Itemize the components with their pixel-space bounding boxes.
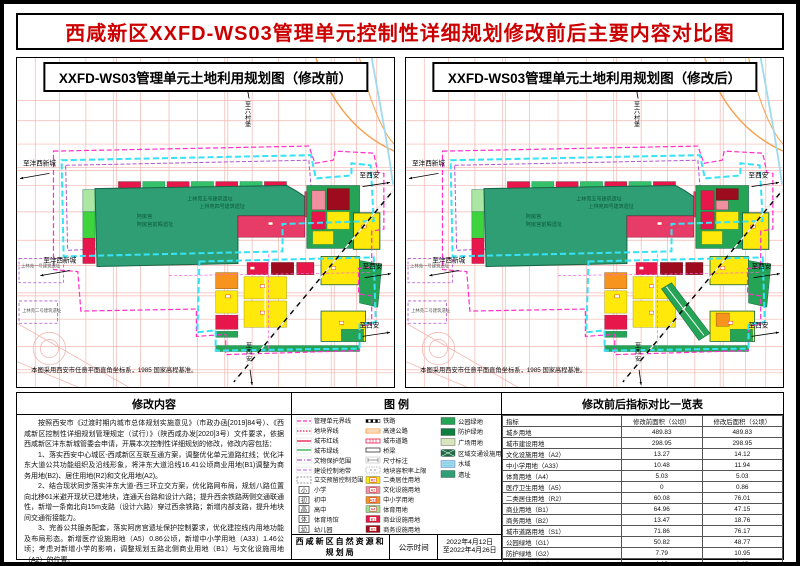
svg-text:至西安: 至西安 <box>360 320 380 329</box>
svg-text:西: 西 <box>246 349 252 356</box>
table-row: 城市道路用地（S1）71.8676.17 <box>503 526 783 537</box>
table-cell: 1.19 <box>622 559 703 566</box>
table-cell: 城市道路用地（S1） <box>503 526 622 537</box>
legend-item: A2文化设施用地 <box>365 485 439 495</box>
table-cell: 医疗卫生用地（A5） <box>503 482 622 493</box>
table-row: 文化设施用地（A2）13.2714.12 <box>503 449 783 460</box>
table-cell: 中小学用地（A33） <box>503 460 622 471</box>
table-cell: 1.19 <box>702 559 783 566</box>
svg-text:至西安: 至西安 <box>749 170 769 179</box>
legend-item: 广场用地 <box>440 437 499 448</box>
legend-item: 城市道路 <box>365 436 439 446</box>
legend-body: 管理单元界线地块界线城市红线城市绿线文物保护范围建设控制地带立交预留控制范围小小… <box>292 412 501 534</box>
table-cell: 298.95 <box>622 438 703 449</box>
table-cell: 76.17 <box>702 526 783 537</box>
legend-item: 防护绿地 <box>440 427 499 438</box>
svg-text:上林苑四号建筑遗址: 上林苑四号建筑遗址 <box>199 203 244 210</box>
map-panel-before: 上林苑五号建筑遗址上林苑四号建筑遗址阿房宫阿房宫前殿遗址上林苑一号建筑遗址上林苑… <box>16 57 395 388</box>
svg-text:至西安: 至西安 <box>360 170 380 179</box>
legend-item-label: 文物保护范围 <box>314 456 351 465</box>
svg-text:R2: R2 <box>371 478 376 482</box>
table-cell: 71.86 <box>622 526 703 537</box>
legend-item: 城市绿线 <box>296 445 364 455</box>
svg-text:上林苑五号建筑遗址: 上林苑五号建筑遗址 <box>187 196 232 203</box>
legend-item: 区域交通设施用地 <box>440 448 499 459</box>
table-cell: 13.27 <box>622 449 703 460</box>
table-row: 医疗卫生用地（A5）00.86 <box>503 482 783 493</box>
table-cell: 10.48 <box>622 460 703 471</box>
legend-item-label: 广场用地 <box>458 438 483 447</box>
legend-item-label: 高速公路 <box>383 426 408 435</box>
table-cell: 14.12 <box>702 449 783 460</box>
legend-item: 公园绿地 <box>440 416 499 427</box>
svg-text:阿房宫: 阿房宫 <box>526 212 542 220</box>
legend-item-label: 二类居住用地 <box>383 475 420 484</box>
publisher-bar: 西咸新区自然资源和规划局 公示时间 2022年4月12日 至2022年4月26日 <box>292 534 501 559</box>
legend-item-label: 尺寸标注 <box>383 456 408 465</box>
svg-text:本图采用西安市任意平面直角坐标系，1985 国家高程基准。: 本图采用西安市任意平面直角坐标系，1985 国家高程基准。 <box>31 365 197 374</box>
legend-item: 幼幼儿园 <box>296 524 364 534</box>
table-cell: 11.94 <box>702 460 783 471</box>
table-cell: 64.96 <box>622 504 703 515</box>
comparison-poster: 西咸新区XXFD-WS03管理单元控制性详细规划修改前后主要内容对比图 上林苑五… <box>0 0 800 566</box>
svg-text:西: 西 <box>635 349 641 356</box>
legend-item: 初初中 <box>296 495 364 505</box>
legend-item: 尺寸标注 <box>365 455 439 465</box>
svg-text:小: 小 <box>301 486 307 494</box>
svg-text:阿房宫前殿遗址: 阿房宫前殿遗址 <box>526 220 564 228</box>
table-cell: 76.01 <box>702 493 783 504</box>
modification-header: 修改内容 <box>17 393 291 415</box>
legend-item-label: 城市道路 <box>383 436 408 445</box>
indicator-table: 指标修改前面积（公顷）修改后面积（公顷）城乡用地489.83489.83城市建设… <box>502 415 783 566</box>
page-title: 西咸新区XXFD-WS03管理单元控制性详细规划修改前后主要内容对比图 <box>16 13 784 50</box>
table-row: 防护绿地（G2）7.7910.95 <box>503 548 783 559</box>
legend-item-label: 管理单元界线 <box>314 416 351 425</box>
svg-text:至: 至 <box>245 102 251 109</box>
legend-item: R2二类居住用地 <box>365 475 439 485</box>
legend-item-label: 中小学用地 <box>383 495 414 504</box>
legend-item-label: 地块容积率上限 <box>383 466 426 475</box>
svg-text:安: 安 <box>246 355 252 363</box>
svg-text:至沣西新城: 至沣西新城 <box>43 255 76 264</box>
legend-section: 图 例 管理单元界线地块界线城市红线城市绿线文物保护范围建设控制地带立交预留控制… <box>292 392 502 560</box>
legend-item-label: 区域交通设施用地 <box>458 449 501 458</box>
legend-item-label: 幼儿园 <box>314 525 333 534</box>
legend-item-label: 桥梁 <box>383 446 395 455</box>
table-row: 城市建设用地298.95298.95 <box>503 438 783 449</box>
table-cell: 48.77 <box>702 537 783 548</box>
svg-text:至: 至 <box>635 343 641 350</box>
table-cell: 13.47 <box>622 515 703 526</box>
legend-item-label: 公园绿地 <box>458 417 483 426</box>
legend-item-label: 初中 <box>314 495 326 504</box>
legend-column-1: 管理单元界线地块界线城市红线城市绿线文物保护范围建设控制地带立交预留控制范围小小… <box>296 416 364 534</box>
svg-text:B1: B1 <box>371 518 376 522</box>
table-row: 广场用地（G3）1.191.19 <box>503 559 783 566</box>
svg-text:高: 高 <box>301 506 307 514</box>
table-cell: 广场用地（G3） <box>503 559 622 566</box>
legend-column-2: 铁路高速公路城市道路桥梁尺寸标注地块容积率上限R2二类居住用地A2文化设施用地A… <box>365 416 439 534</box>
legend-item: 小小学 <box>296 485 364 495</box>
table-cell: 城乡用地 <box>503 427 622 438</box>
svg-text:幼: 幼 <box>301 525 307 533</box>
table-cell: 298.95 <box>702 438 783 449</box>
svg-text:至: 至 <box>246 343 252 350</box>
legend-item: 立交预留控制范围 <box>296 475 364 485</box>
table-cell: 防护绿地（G2） <box>503 548 622 559</box>
svg-text:至沣西新城: 至沣西新城 <box>23 158 56 167</box>
svg-text:堡: 堡 <box>245 121 251 129</box>
table-cell: 0 <box>622 482 703 493</box>
table-cell: 体育用地（A4） <box>503 471 622 482</box>
svg-text:本图采用西安市任意平面直角坐标系，1985 国家高程基准。: 本图采用西安市任意平面直角坐标系，1985 国家高程基准。 <box>420 365 586 374</box>
legend-item: B1商业设施用地 <box>365 514 439 524</box>
legend-item-label: 建设控制地带 <box>314 466 351 475</box>
legend-item-label: 商务设施用地 <box>383 525 420 534</box>
modification-paragraph-0: 按照西安市《过渡时期内城市总体规划实施意见》（市政办函[2019]84号）、《西… <box>24 419 284 451</box>
legend-item-label: 文化设施用地 <box>383 485 420 494</box>
map-after-title: XXFD-WS03管理单元土地利用规划图（修改后） <box>432 62 757 92</box>
legend-item: 铁路 <box>365 416 439 426</box>
table-cell: 二类居住用地（R2） <box>503 493 622 504</box>
svg-text:A2: A2 <box>371 488 376 492</box>
legend-item: 高速公路 <box>365 426 439 436</box>
legend-item: 遗址 <box>440 469 499 480</box>
svg-text:至沣西新城: 至沣西新城 <box>432 255 465 264</box>
table-cell: 7.79 <box>622 548 703 559</box>
svg-text:阿房宫前殿遗址: 阿房宫前殿遗址 <box>137 220 175 228</box>
svg-text:六: 六 <box>634 107 640 115</box>
legend-item: 高高中 <box>296 504 364 514</box>
publicity-dates: 2022年4月12日 至2022年4月26日 <box>437 535 501 559</box>
table-cell: 18.76 <box>702 515 783 526</box>
map-before-title: XXFD-WS03管理单元土地利用规划图（修改前） <box>43 62 368 92</box>
svg-text:上林苑二号建筑遗址: 上林苑二号建筑遗址 <box>411 307 451 314</box>
table-cell: 10.95 <box>702 548 783 559</box>
legend-item: 文物保护范围 <box>296 455 364 465</box>
svg-text:至西安: 至西安 <box>749 320 769 329</box>
legend-item-label: 体育场馆 <box>314 515 339 524</box>
legend-item: 城市红线 <box>296 436 364 446</box>
table-row: 城乡用地489.83489.83 <box>503 427 783 438</box>
table-cell: 489.83 <box>702 427 783 438</box>
legend-item-label: 城市红线 <box>314 436 339 445</box>
table-column-header: 修改前面积（公顷） <box>622 416 703 427</box>
legend-item: 管理单元界线 <box>296 416 364 426</box>
table-cell: 5.03 <box>702 471 783 482</box>
table-cell: 文化设施用地（A2） <box>503 449 622 460</box>
svg-text:堡: 堡 <box>634 121 640 129</box>
legend-item-label: 立交预留控制范围 <box>314 475 364 484</box>
table-cell: 0.86 <box>702 482 783 493</box>
svg-text:至西安: 至西安 <box>363 262 383 271</box>
modification-paragraph-3: 3、完善公共服务配套，落实阿房宫遗址保护控制要求，优化建控线内用地功能及布局形态… <box>24 524 284 566</box>
table-cell: 城市建设用地 <box>503 438 622 449</box>
svg-text:上林苑二号建筑遗址: 上林苑二号建筑遗址 <box>22 307 62 314</box>
legend-item: 地块容积率上限 <box>365 465 439 475</box>
indicator-table-section: 修改前后指标对比一览表 指标修改前面积（公顷）修改后面积（公顷）城乡用地489.… <box>502 392 784 560</box>
svg-text:安: 安 <box>635 355 641 363</box>
modification-section: 修改内容 按照西安市《过渡时期内城市总体规划实施意见》（市政办函[2019]84… <box>16 392 292 560</box>
svg-text:上林苑四号建筑遗址: 上林苑四号建筑遗址 <box>588 203 633 210</box>
table-cell: 5.03 <box>622 471 703 482</box>
legend-column-3: 公园绿地防护绿地广场用地区域交通设施用地水域遗址 <box>440 416 499 534</box>
table-header-row: 指标修改前面积（公顷）修改后面积（公顷） <box>503 416 783 427</box>
table-row: 二类居住用地（R2）60.0876.01 <box>503 493 783 504</box>
svg-text:B2: B2 <box>371 527 376 531</box>
svg-text:村: 村 <box>634 114 640 122</box>
legend-item: A33中小学用地 <box>365 495 439 505</box>
legend-item-label: 城市绿线 <box>314 446 339 455</box>
legend-item-label: 小学 <box>314 485 326 494</box>
bottom-section: 修改内容 按照西安市《过渡时期内城市总体规划实施意见》（市政办函[2019]84… <box>16 392 784 560</box>
modification-text: 按照西安市《过渡时期内城市总体规划实施意见》（市政办函[2019]84号）、《西… <box>17 415 291 566</box>
table-cell: 47.15 <box>702 504 783 515</box>
svg-text:至: 至 <box>634 102 640 109</box>
table-cell: 公园绿地（G1） <box>503 537 622 548</box>
legend-item-label: 防护绿地 <box>458 427 483 436</box>
svg-text:至沣西新城: 至沣西新城 <box>412 158 445 167</box>
indicator-table-header: 修改前后指标对比一览表 <box>502 393 783 415</box>
legend-item-label: 铁路 <box>383 416 395 425</box>
publicity-date-end: 至2022年4月26日 <box>443 547 497 555</box>
svg-text:上林苑五号建筑遗址: 上林苑五号建筑遗址 <box>576 196 621 203</box>
legend-item-label: 地块界线 <box>314 426 339 435</box>
modification-paragraph-1: 1、落实西安中心城区-西咸新区互联互通方案，调整优化单元道路红线；优化沣东大道公… <box>24 451 284 483</box>
table-cell: 60.08 <box>622 493 703 504</box>
modification-paragraph-2: 2、结合现状同步落实沣东大道-西三环立交方案，优化路网布局，规划八路位置向北移6… <box>24 482 284 524</box>
svg-text:至西安: 至西安 <box>752 262 772 271</box>
svg-text:六: 六 <box>245 107 251 115</box>
legend-item: 桥梁 <box>365 445 439 455</box>
publicity-time-label: 公示时间 <box>389 535 437 559</box>
legend-item: 建设控制地带 <box>296 465 364 475</box>
legend-item: 水域 <box>440 458 499 469</box>
map-before-canvas: 上林苑五号建筑遗址上林苑四号建筑遗址阿房宫阿房宫前殿遗址上林苑一号建筑遗址上林苑… <box>17 58 394 387</box>
table-cell: 商业用地（B1） <box>503 504 622 515</box>
publicity-date-start: 2022年4月12日 <box>446 539 493 547</box>
legend-item: A4体育用地 <box>365 504 439 514</box>
legend-item-label: 体育用地 <box>383 505 408 514</box>
table-column-header: 指标 <box>503 416 622 427</box>
svg-text:阿房宫: 阿房宫 <box>137 212 153 220</box>
legend-item-label: 水域 <box>458 459 470 468</box>
table-cell: 50.82 <box>622 537 703 548</box>
svg-text:村: 村 <box>245 114 251 122</box>
legend-item: B2商务设施用地 <box>365 524 439 534</box>
map-panel-after: 上林苑五号建筑遗址上林苑四号建筑遗址阿房宫阿房宫前殿遗址上林苑一号建筑遗址上林苑… <box>405 57 784 388</box>
agency-name: 西咸新区自然资源和规划局 <box>292 535 389 559</box>
table-row: 体育用地（A4）5.035.03 <box>503 471 783 482</box>
legend-item-label: 商业设施用地 <box>383 515 420 524</box>
legend-item-label: 遗址 <box>458 470 470 479</box>
table-row: 公园绿地（G1）50.8248.77 <box>503 537 783 548</box>
legend-item: 体体育场馆 <box>296 514 364 524</box>
table-cell: 489.83 <box>622 427 703 438</box>
table-row: 商业用地（B1）64.9647.15 <box>503 504 783 515</box>
svg-text:体: 体 <box>301 516 307 524</box>
table-cell: 商务用地（B2） <box>503 515 622 526</box>
table-column-header: 修改后面积（公顷） <box>702 416 783 427</box>
svg-text:A4: A4 <box>371 508 376 512</box>
svg-text:初: 初 <box>301 496 307 504</box>
table-row: 商务用地（B2）13.4718.76 <box>503 515 783 526</box>
legend-item: 地块界线 <box>296 426 364 436</box>
maps-row: 上林苑五号建筑遗址上林苑四号建筑遗址阿房宫阿房宫前殿遗址上林苑一号建筑遗址上林苑… <box>16 57 784 388</box>
table-row: 中小学用地（A33）10.4811.94 <box>503 460 783 471</box>
map-after-canvas: 上林苑五号建筑遗址上林苑四号建筑遗址阿房宫阿房宫前殿遗址上林苑一号建筑遗址上林苑… <box>406 58 783 387</box>
svg-text:A33: A33 <box>370 498 377 502</box>
legend-item-label: 高中 <box>314 505 326 514</box>
